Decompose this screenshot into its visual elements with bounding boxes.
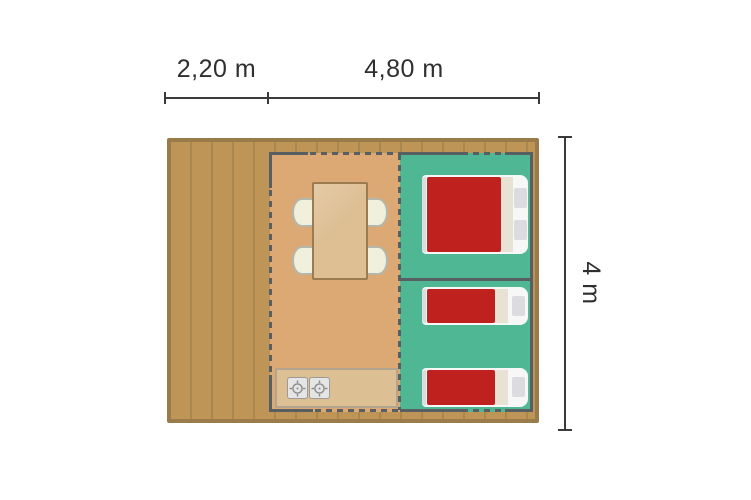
single-bed <box>422 287 528 325</box>
mattress-edge <box>422 289 426 323</box>
dimension-cap-top <box>558 136 572 138</box>
wall-bedroom-bottom-right <box>505 409 533 412</box>
wall-dashed-left <box>269 190 272 373</box>
mattress-edge <box>422 177 426 252</box>
chair <box>366 198 388 227</box>
dimension-line-top <box>165 97 540 99</box>
dimension-cap-bottom <box>558 429 572 431</box>
dimension-line-right <box>564 137 566 430</box>
wall-bedroom-top-left <box>400 152 462 155</box>
wall-bedroom-right <box>530 152 533 412</box>
double-bed <box>422 175 528 254</box>
wall-bedroom-divider <box>400 278 533 281</box>
duvet <box>427 370 495 405</box>
window-dashed-top <box>462 152 505 155</box>
dimension-label-interior-width: 4,80 m <box>268 55 540 84</box>
sheet-fold <box>501 177 513 252</box>
duvet <box>427 177 501 252</box>
duvet <box>427 289 495 323</box>
pillow <box>514 188 527 208</box>
wall-corner-topleft-v <box>269 152 272 188</box>
dining-table <box>312 182 368 280</box>
dimension-tick-right <box>538 92 540 104</box>
single-bed <box>422 368 528 407</box>
wall-bedroom-top-right <box>505 152 533 155</box>
pillow <box>512 377 525 397</box>
dimension-label-depth: 4 m <box>577 253 605 313</box>
sheet-fold <box>495 289 508 323</box>
floor-plan: 2,20 m 4,80 m 4 m <box>0 0 751 500</box>
wall-bedroom-bottom-left <box>400 409 462 412</box>
stove-burner-icon <box>289 380 306 397</box>
wall-dashed-bedroom-partition <box>398 154 401 410</box>
wall-dashed-top-living <box>310 152 400 155</box>
window-dashed-bottom <box>462 409 505 412</box>
stove-burner <box>287 377 308 399</box>
sheet-fold <box>495 370 508 405</box>
dimension-tick-left <box>164 92 166 104</box>
wall-corner-bottomleft-v <box>269 375 272 412</box>
pillow <box>514 220 527 240</box>
dimension-tick-middle <box>267 92 269 104</box>
wall-corner-topleft-h <box>270 152 308 155</box>
stove-burner <box>309 377 330 399</box>
stove-burner-icon <box>311 380 328 397</box>
dimension-label-terrace-width: 2,20 m <box>165 55 268 84</box>
chair <box>366 246 388 275</box>
pillow <box>512 296 525 316</box>
chair <box>292 198 314 227</box>
wall-dashed-bottom-living <box>315 409 400 412</box>
chair <box>292 246 314 275</box>
mattress-edge <box>422 370 426 405</box>
wall-corner-bottomleft-h <box>270 409 313 412</box>
